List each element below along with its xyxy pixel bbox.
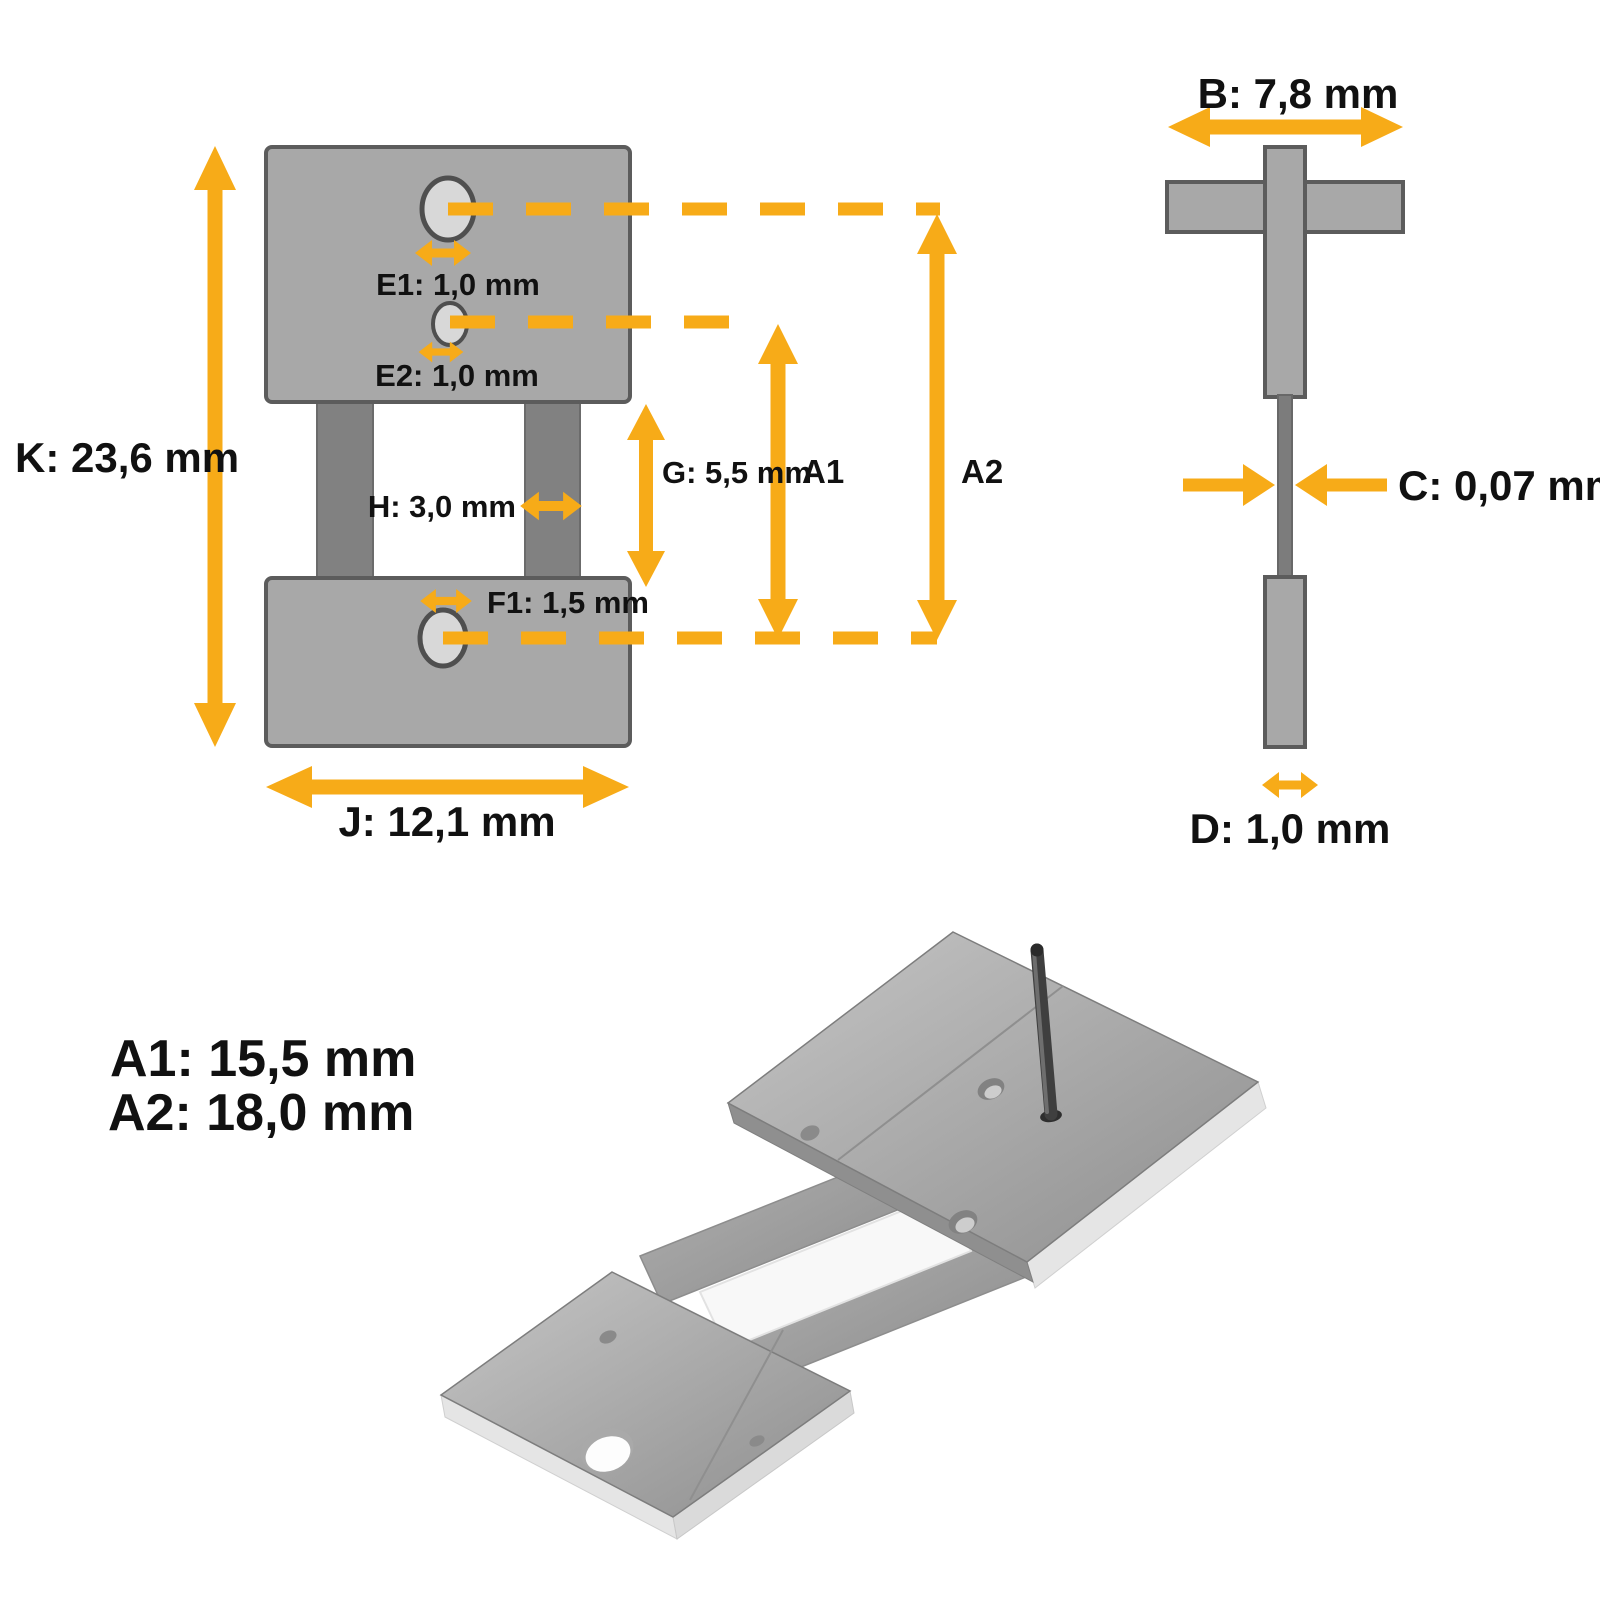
a1-value-label: A1: 15,5 mm — [110, 1030, 416, 1088]
c-arrow-right — [1295, 464, 1387, 506]
d-arrow — [1262, 772, 1318, 798]
suspension-spring-photo — [441, 932, 1266, 1539]
d-dimension-label: D: 1,0 mm — [1190, 805, 1391, 852]
left-leg — [317, 398, 373, 582]
a2-arrow — [917, 214, 957, 640]
c-arrow-left — [1183, 464, 1275, 506]
j-dimension-label: J: 12,1 mm — [338, 798, 555, 845]
a1-arrow-label: A1 — [802, 453, 844, 490]
e1-dimension-label: E1: 1,0 mm — [376, 267, 540, 302]
side-view-diagram: B: 7,8 mm C: 0,07 mm D: 1,0 mm — [1167, 70, 1600, 852]
a2-value-label: A2: 18,0 mm — [108, 1084, 414, 1142]
spring-blade — [1278, 395, 1292, 579]
f1-dimension-label: F1: 1,5 mm — [487, 585, 649, 620]
b-dimension-label: B: 7,8 mm — [1198, 70, 1399, 117]
technical-drawing-canvas: K: 23,6 mm J: 12,1 mm E1: 1,0 mm E2: 1,0… — [0, 0, 1600, 1600]
h-dimension-label: H: 3,0 mm — [368, 489, 516, 524]
legend: A1: 15,5 mm A2: 18,0 mm — [108, 1030, 416, 1142]
a2-arrow-label: A2 — [961, 453, 1003, 490]
page: K: 23,6 mm J: 12,1 mm E1: 1,0 mm E2: 1,0… — [0, 0, 1600, 1600]
g-arrow — [627, 404, 665, 587]
front-view-diagram: K: 23,6 mm J: 12,1 mm E1: 1,0 mm E2: 1,0… — [15, 146, 1003, 845]
lower-block — [1265, 577, 1305, 747]
upper-stem — [1265, 147, 1305, 397]
g-dimension-label: G: 5,5 mm — [662, 455, 812, 490]
c-dimension-label: C: 0,07 mm — [1398, 462, 1600, 509]
k-dimension-label: K: 23,6 mm — [15, 434, 239, 481]
right-leg — [525, 398, 580, 582]
e2-dimension-label: E2: 1,0 mm — [375, 358, 539, 393]
